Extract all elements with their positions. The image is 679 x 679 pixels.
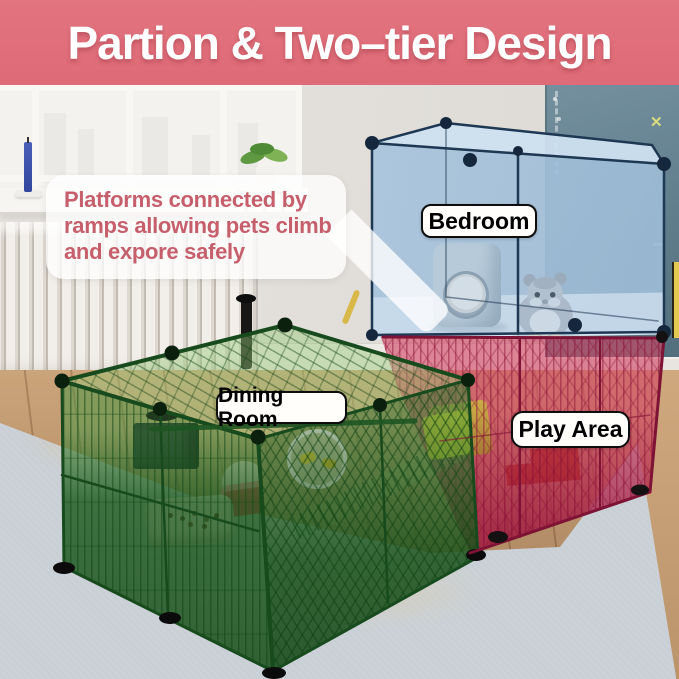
label-play-area-text: Play Area (519, 416, 623, 443)
yellow-picture-frame (672, 262, 679, 338)
callout-text-line: Platforms connected by (64, 187, 346, 213)
callout-text-line: and expore safely (64, 239, 346, 265)
skyline-building (44, 113, 66, 183)
blue-candle (24, 142, 32, 192)
label-play-area: Play Area (511, 411, 630, 448)
label-dining-room-text: Dining Room (218, 384, 345, 432)
label-dining-room: Dining Room (216, 391, 347, 424)
callout-text-line: ramps allowing pets climb (64, 213, 346, 239)
room-scene: ✕ (0, 85, 679, 679)
candle-wick (27, 137, 29, 143)
label-bedroom: Bedroom (421, 204, 537, 238)
dot-doodle-icon (553, 97, 557, 101)
dot-doodle-icon (557, 117, 561, 121)
page-title: Partion & Two–tier Design (67, 16, 611, 70)
product-image: Partion & Two–tier Design ✕ (0, 0, 679, 679)
label-bedroom-text: Bedroom (429, 208, 530, 235)
callout-bubble: Platforms connected by ramps allowing pe… (46, 175, 346, 279)
header-banner: Partion & Two–tier Design (0, 0, 679, 85)
radiator-pipe-cap (236, 294, 256, 303)
x-doodle-icon: ✕ (650, 113, 663, 131)
skyline-building (142, 117, 168, 183)
